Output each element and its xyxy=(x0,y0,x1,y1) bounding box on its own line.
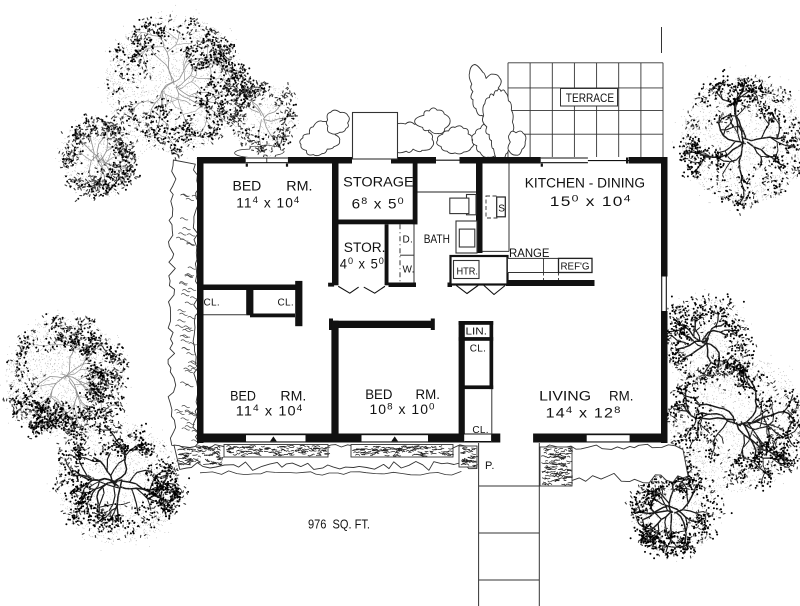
svg-text:RM.: RM. xyxy=(416,387,440,402)
svg-text:REF'G: REF'G xyxy=(561,260,590,272)
svg-text:STOR.: STOR. xyxy=(344,240,386,255)
svg-text:TERRACE: TERRACE xyxy=(566,93,615,105)
svg-text:D.: D. xyxy=(403,235,414,246)
svg-text:150 x 104: 150 x 104 xyxy=(550,194,632,210)
svg-text:RM.: RM. xyxy=(280,388,306,403)
svg-text:RANGE: RANGE xyxy=(509,248,550,260)
svg-text:68 x 50: 68 x 50 xyxy=(352,196,405,212)
svg-text:CL.: CL. xyxy=(472,425,488,436)
svg-text:RM.: RM. xyxy=(286,179,312,194)
svg-text:976 SQ. FT.: 976 SQ. FT. xyxy=(308,516,370,531)
svg-text:BED: BED xyxy=(365,387,393,402)
svg-text:LIN.: LIN. xyxy=(466,326,488,337)
svg-text:BATH: BATH xyxy=(424,232,450,246)
svg-text:114 x 104: 114 x 104 xyxy=(236,403,304,419)
svg-text:40 x 50: 40 x 50 xyxy=(340,256,385,272)
svg-text:CL.: CL. xyxy=(278,298,294,309)
svg-text:RM.: RM. xyxy=(609,389,633,404)
svg-text:LIVING: LIVING xyxy=(539,389,591,404)
svg-text:P.: P. xyxy=(485,460,495,472)
svg-text:BED: BED xyxy=(230,388,256,403)
svg-text:CL.: CL. xyxy=(204,298,220,309)
svg-text:HTR.: HTR. xyxy=(457,266,479,278)
svg-text:KITCHEN - DINING: KITCHEN - DINING xyxy=(525,175,645,190)
svg-text:144 x 128: 144 x 128 xyxy=(546,405,622,421)
svg-text:S: S xyxy=(498,204,505,215)
svg-text:BED: BED xyxy=(233,179,262,194)
svg-text:114 x 104: 114 x 104 xyxy=(236,195,300,211)
svg-text:CL.: CL. xyxy=(470,344,486,355)
svg-text:W.: W. xyxy=(403,264,415,275)
svg-text:108 x 100: 108 x 100 xyxy=(370,402,436,418)
svg-text:STORAGE: STORAGE xyxy=(343,175,414,190)
